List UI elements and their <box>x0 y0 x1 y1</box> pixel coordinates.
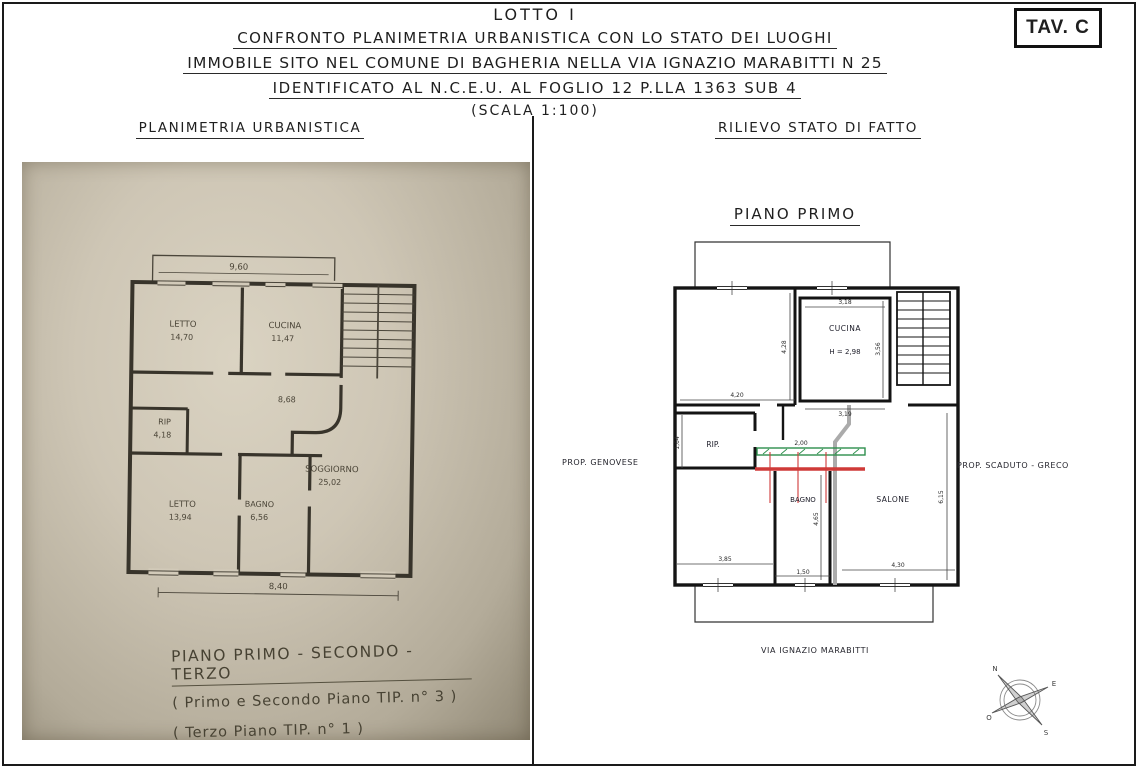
room-label: BAGNO <box>245 500 274 509</box>
dim-label: 3,18 <box>838 299 852 306</box>
sheet-number: TAV. C <box>1026 17 1090 39</box>
compass-rose: N E O S <box>978 645 1070 740</box>
left-section-title: PLANIMETRIA URBANISTICA <box>0 120 500 139</box>
compass-north: N <box>992 665 997 673</box>
header-line-1-text: CONFRONTO PLANIMETRIA URBANISTICA CON LO… <box>233 29 836 49</box>
dim-label: 2,00 <box>794 440 808 447</box>
left-room-labels: LETTO 14,70 CUCINA 11,47 RIP 4,18 LETTO … <box>151 261 361 593</box>
scanned-plan-photo: LETTO 14,70 CUCINA 11,47 RIP 4,18 LETTO … <box>22 162 530 740</box>
room-label: CUCINA <box>829 324 861 333</box>
room-label: BAGNO <box>790 496 816 504</box>
compass-south: S <box>1044 729 1049 737</box>
header-line-2-text: IMMOBILE SITO NEL COMUNE DI BAGHERIA NEL… <box>183 54 886 74</box>
caption-title: PIANO PRIMO - SECONDO - TERZO <box>171 640 472 686</box>
right-interior-walls <box>675 288 958 585</box>
right-floor-plan: 4,20 4,28 3,18 3,19 3,56 1,64 2,00 4,65 … <box>655 235 970 635</box>
dim-label: 1,64 <box>674 436 681 450</box>
right-section-title: RILIEVO STATO DI FATTO <box>533 120 1103 139</box>
room-label: CUCINA <box>268 321 301 331</box>
dim-label: 8,40 <box>269 582 288 592</box>
dim-label: 4,20 <box>730 392 744 399</box>
right-section-title-text: RILIEVO STATO DI FATTO <box>715 120 921 139</box>
lot-title: LOTTO I <box>60 5 1010 24</box>
room-height-label: H = 2,98 <box>829 348 860 356</box>
header-line-3: IDENTIFICATO AL N.C.E.U. AL FOGLIO 12 P.… <box>60 79 1010 99</box>
dim-label: 6,15 <box>938 490 945 504</box>
dim-label: 3,19 <box>838 411 852 418</box>
right-plan-title-text: PIANO PRIMO <box>730 205 860 226</box>
dim-label: 4,28 <box>781 340 788 354</box>
panel-divider-line <box>532 116 534 764</box>
dim-label: 9,60 <box>229 262 248 272</box>
right-windows <box>703 281 910 592</box>
header-line-2: IMMOBILE SITO NEL COMUNE DI BAGHERIA NEL… <box>60 54 1010 74</box>
room-area: 4,18 <box>153 430 171 439</box>
left-plan-caption: PIANO PRIMO - SECONDO - TERZO ( Primo e … <box>171 640 473 741</box>
right-dim-lines <box>677 293 955 580</box>
room-label: SALONE <box>876 495 909 504</box>
room-label: LETTO <box>169 500 196 510</box>
room-area: 14,70 <box>170 333 193 342</box>
room-label: RIP <box>158 417 171 426</box>
demolished-wall-green <box>757 448 865 455</box>
sheet-number-box: TAV. C <box>1014 8 1102 48</box>
room-area: 11,47 <box>271 334 294 343</box>
street-label: VIA IGNAZIO MARABITTI <box>700 646 930 655</box>
neighbor-label-right: PROP. SCADUTO - GRECO <box>957 461 1069 470</box>
header-line-1: CONFRONTO PLANIMETRIA URBANISTICA CON LO… <box>60 29 1010 49</box>
scale-note: (SCALA 1:100) <box>60 103 1010 119</box>
room-area: 6,56 <box>250 513 268 522</box>
room-label: RIP. <box>706 440 719 449</box>
caption-sub-1: ( Primo e Secondo Piano TIP. n° 3 ) <box>172 688 472 711</box>
room-area: 13,94 <box>169 513 192 522</box>
left-stairs <box>341 285 414 379</box>
right-outer-walls <box>675 288 958 585</box>
right-plan-title: PIANO PRIMO <box>660 205 930 226</box>
room-area: 25,02 <box>318 478 341 487</box>
right-dim-labels: 4,20 4,28 3,18 3,19 3,56 1,64 2,00 4,65 … <box>674 299 945 576</box>
header-line-3-text: IDENTIFICATO AL N.C.E.U. AL FOGLIO 12 P.… <box>269 79 802 99</box>
title-block: LOTTO I CONFRONTO PLANIMETRIA URBANISTIC… <box>60 2 1010 119</box>
dim-label: 1,50 <box>796 569 810 576</box>
right-stairs <box>897 292 950 385</box>
dim-label: 4,30 <box>891 562 905 569</box>
dim-label: 3,56 <box>875 342 882 356</box>
left-section-title-text: PLANIMETRIA URBANISTICA <box>136 120 365 139</box>
compass-west: O <box>986 714 992 722</box>
dim-label: 4,65 <box>813 512 820 526</box>
neighbor-label-left: PROP. GENOVESE <box>562 458 638 467</box>
gray-existing-wall <box>835 405 849 585</box>
dim-label: 3,85 <box>718 556 732 563</box>
room-label: LETTO <box>169 320 196 330</box>
compass-east: E <box>1052 680 1056 688</box>
dim-label: 8,68 <box>278 395 296 404</box>
room-label: SOGGIORNO <box>305 464 359 475</box>
